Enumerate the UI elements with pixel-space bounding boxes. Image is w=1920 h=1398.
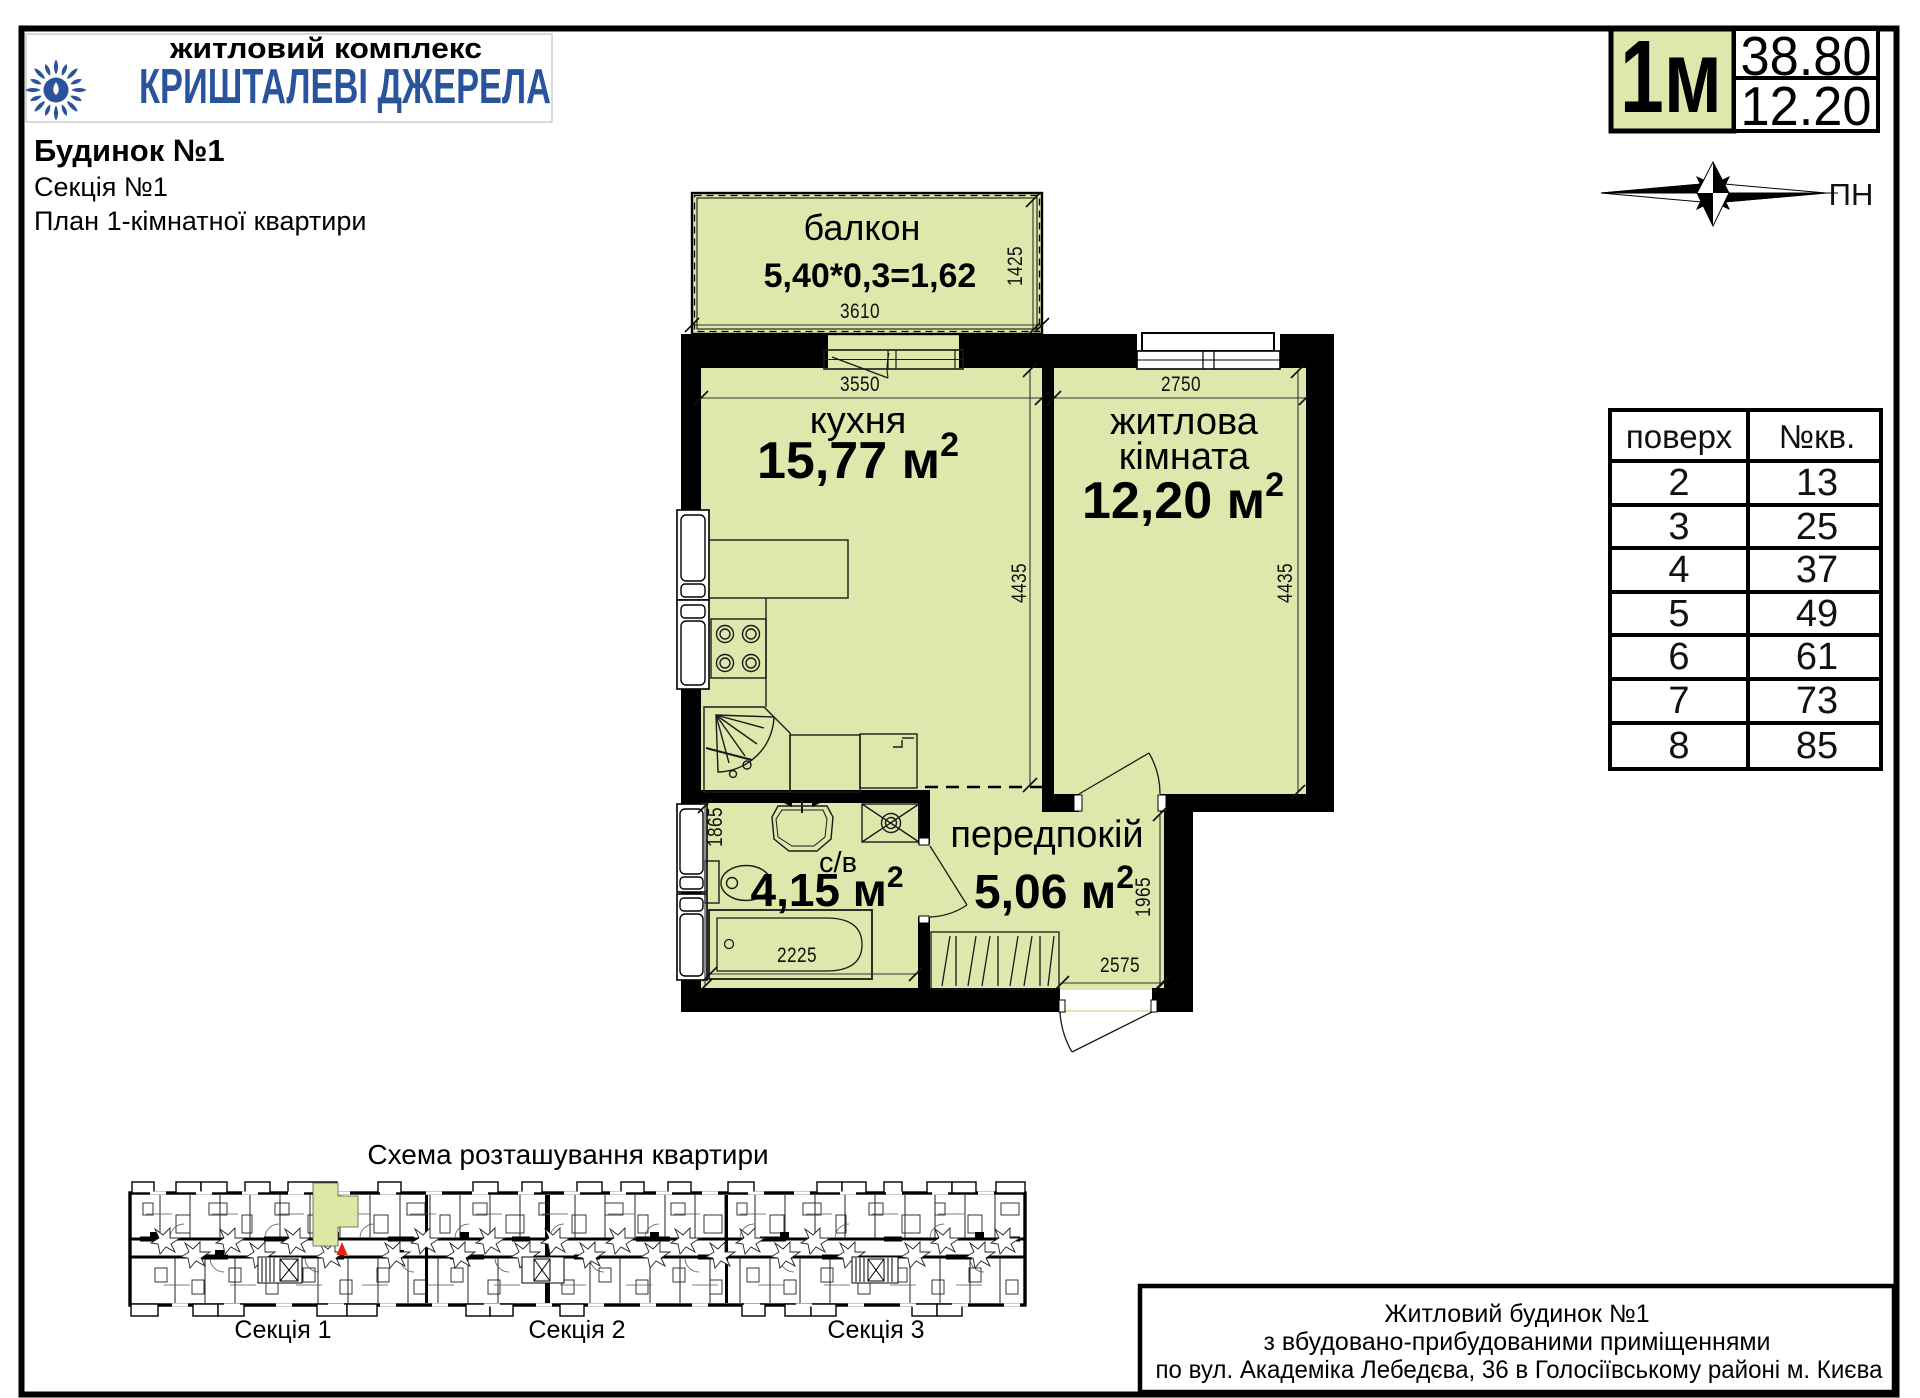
svg-text:План 1-кімнатної квартири: План 1-кімнатної квартири (34, 206, 366, 236)
svg-text:4435: 4435 (1008, 563, 1031, 603)
svg-text:5,06 м2: 5,06 м2 (974, 859, 1134, 919)
svg-text:49: 49 (1796, 593, 1838, 635)
svg-text:4,15 м2: 4,15 м2 (750, 861, 903, 916)
svg-text:15,77 м2: 15,77 м2 (757, 426, 959, 490)
svg-text:3550: 3550 (840, 373, 880, 396)
svg-text:1425: 1425 (1004, 246, 1027, 286)
svg-text:балкон: балкон (804, 207, 921, 248)
svg-text:Схема розташування квартири: Схема розташування квартири (367, 1139, 768, 1170)
svg-text:Житловий будинок №1: Житловий будинок №1 (1384, 1300, 1649, 1328)
svg-text:1м: 1м (1620, 19, 1722, 134)
svg-text:Секція 2: Секція 2 (528, 1316, 625, 1344)
svg-text:13: 13 (1796, 462, 1838, 504)
svg-text:поверх: поверх (1626, 418, 1733, 455)
svg-text:5,40*0,3=1,62: 5,40*0,3=1,62 (764, 257, 977, 295)
svg-text:73: 73 (1796, 680, 1838, 722)
svg-text:1865: 1865 (704, 807, 727, 847)
svg-text:1965: 1965 (1132, 877, 1155, 917)
svg-text:по вул. Академіка Лебедєва, 36: по вул. Академіка Лебедєва, 36 в Голосії… (1156, 1356, 1883, 1384)
svg-text:2575: 2575 (1100, 954, 1140, 977)
svg-text:37: 37 (1796, 549, 1838, 591)
svg-text:Секція №1: Секція №1 (34, 172, 168, 202)
svg-text:85: 85 (1796, 725, 1838, 767)
svg-text:№кв.: №кв. (1779, 418, 1856, 455)
svg-text:25: 25 (1796, 506, 1838, 548)
svg-text:12,20 м2: 12,20 м2 (1082, 466, 1284, 530)
svg-text:7: 7 (1668, 680, 1689, 722)
svg-text:4: 4 (1668, 549, 1689, 591)
svg-text:8: 8 (1668, 725, 1689, 767)
svg-text:Секція 1: Секція 1 (234, 1316, 331, 1344)
svg-text:4435: 4435 (1274, 563, 1297, 603)
svg-text:ПН: ПН (1829, 177, 1874, 212)
svg-text:2225: 2225 (777, 944, 817, 967)
svg-text:12.20: 12.20 (1741, 75, 1872, 137)
svg-text:3610: 3610 (840, 300, 880, 323)
svg-text:61: 61 (1796, 636, 1838, 678)
svg-text:Секція 3: Секція 3 (827, 1316, 924, 1344)
svg-text:2: 2 (1668, 462, 1689, 504)
svg-text:5: 5 (1668, 593, 1689, 635)
svg-text:Будинок №1: Будинок №1 (34, 133, 225, 168)
svg-text:3: 3 (1668, 506, 1689, 548)
svg-text:2750: 2750 (1161, 373, 1201, 396)
svg-text:з вбудовано-прибудованими прим: з вбудовано-прибудованими приміщеннями (1263, 1328, 1770, 1356)
svg-text:КРИШТАЛЕВІ ДЖЕРЕЛА: КРИШТАЛЕВІ ДЖЕРЕЛА (139, 60, 551, 114)
svg-text:6: 6 (1668, 636, 1689, 678)
svg-text:передпокій: передпокій (950, 814, 1143, 856)
